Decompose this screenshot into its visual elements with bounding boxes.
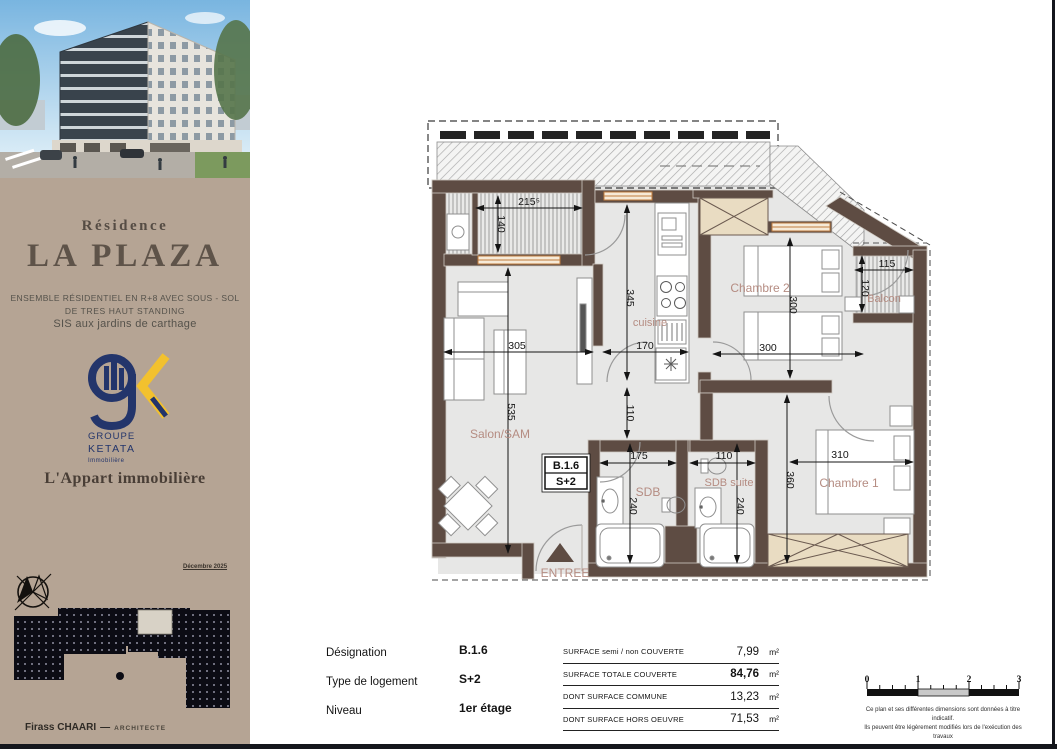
brand-name: L'Appart immobilière	[0, 470, 250, 488]
residence-label: Résidence	[0, 218, 250, 235]
site-plan	[8, 598, 240, 714]
table-row: DONT SURFACE HORS OEUVRE 71,53 m²	[563, 709, 779, 732]
sdb-vanity	[597, 477, 623, 527]
dim-300-h: 300	[759, 342, 777, 354]
pergola-slats	[440, 131, 770, 139]
architect-title: ARCHITECTE	[114, 725, 166, 732]
surface-label: DONT SURFACE HORS OEUVRE	[563, 715, 725, 724]
dim-110-v: 110	[624, 405, 636, 422]
surface-value: 13,23	[725, 691, 759, 703]
surface-value: 71,53	[725, 713, 759, 725]
disclaimer-line-1: Ce plan et ses différentes dimensions so…	[858, 706, 1028, 724]
room-label-entree: ENTREE	[541, 566, 590, 580]
surface-value: 7,99	[725, 646, 759, 658]
table-row: SURFACE TOTALE COUVERTE 84,76 m²	[563, 664, 779, 687]
info-value: S+2	[459, 672, 481, 686]
dim-240-b: 240	[734, 497, 746, 515]
table-row: DONT SURFACE COMMUNE 13,23 m²	[563, 686, 779, 709]
dim-110-b: 110	[716, 450, 733, 462]
table-row: Type de logement S+2	[326, 672, 566, 701]
dim-170: 170	[636, 340, 654, 352]
residence-subtitle-2: DE TRES HAUT STANDING	[0, 306, 250, 316]
room-label-sdb: SDB	[636, 485, 661, 499]
tv-unit	[577, 278, 592, 384]
suite-vanity	[695, 488, 721, 528]
nightstand-chambre1-b	[884, 518, 910, 534]
plan-disclaimer: Ce plan et ses différentes dimensions so…	[858, 706, 1028, 742]
table-row: SURFACE semi / non COUVERTE 7,99 m²	[563, 641, 779, 664]
dim-175: 175	[630, 450, 648, 462]
surface-unit: m²	[759, 692, 779, 702]
logo-line-ketata: KETATA	[88, 443, 136, 455]
stove	[657, 276, 687, 316]
info-label: Type de logement	[326, 676, 417, 688]
nightstand-chambre2	[845, 297, 861, 311]
room-label-cuisine: cuisine	[633, 317, 667, 329]
wc-sink	[447, 214, 469, 250]
room-label-salon: Salon/SAM	[470, 427, 530, 441]
dim-300-v: 300	[787, 296, 799, 314]
bed-chambre1	[816, 430, 914, 514]
surface-label: SURFACE semi / non COUVERTE	[563, 647, 725, 656]
residence-name: LA PLAZA	[0, 238, 250, 275]
oven	[658, 213, 686, 255]
groupe-ketata-logo-icon	[72, 350, 182, 432]
architect-dash: —	[100, 722, 110, 733]
plan-date: Décembre 2025	[183, 564, 227, 570]
info-value: B.1.6	[459, 643, 488, 657]
surface-unit: m²	[759, 669, 779, 679]
page-border-bottom	[0, 744, 1057, 749]
architect-credit: Firass CHAARI—ARCHITECTE	[25, 722, 166, 733]
kitchen-sink	[656, 348, 686, 380]
logo-line-groupe: GROUPE	[88, 431, 136, 443]
architect-name: Firass CHAARI	[25, 722, 96, 733]
sofa	[444, 318, 484, 400]
room-label-balcon: Balcon	[867, 293, 901, 305]
suite-bathtub	[700, 524, 754, 567]
surface-value: 84,76	[725, 668, 759, 680]
dim-305: 305	[508, 340, 526, 352]
table-row: Niveau 1er étage	[326, 701, 566, 730]
dim-140: 140	[495, 215, 507, 233]
wardrobe-top	[700, 198, 768, 235]
dim-345: 345	[624, 289, 636, 307]
room-label-sdb-suite: SDB suite	[705, 477, 754, 489]
info-label: Niveau	[326, 705, 362, 717]
surface-label: SURFACE TOTALE COUVERTE	[563, 670, 725, 679]
surface-unit: m²	[759, 714, 779, 724]
dim-310: 310	[831, 449, 849, 461]
info-label: Désignation	[326, 647, 387, 659]
unit-box: B.1.6 S+2	[542, 454, 590, 492]
dim-535: 535	[505, 403, 517, 421]
unit-code: B.1.6	[553, 460, 579, 472]
surface-table: SURFACE semi / non COUVERTE 7,99 m² SURF…	[563, 641, 779, 731]
dim-115: 115	[879, 258, 896, 270]
nightstand-chambre1-a	[890, 406, 912, 426]
surface-unit: m²	[759, 647, 779, 657]
loveseat	[458, 282, 508, 316]
room-label-chambre2: Chambre 2	[730, 281, 790, 295]
disclaimer-line-2: Ils peuvent être légèrement modifiés lor…	[858, 724, 1028, 742]
residence-subtitle-3: SIS aux jardins de carthage	[0, 318, 250, 330]
logo-line-immobiliere: Immobilière	[88, 455, 136, 467]
balcony-ledge	[899, 296, 914, 313]
dim-240-a: 240	[627, 497, 639, 515]
brochure-page: 215⁵ 140 345 305 170 300 300 535 110 115…	[0, 0, 1057, 749]
dim-360: 360	[784, 471, 796, 489]
dim-215: 215⁵	[518, 196, 540, 208]
unit-info-table: Désignation B.1.6 Type de logement S+2 N…	[326, 643, 566, 730]
wardrobe-chambre1	[768, 534, 908, 567]
building-photo	[0, 0, 250, 178]
info-value: 1er étage	[459, 701, 512, 715]
groupe-ketata-logo-text: GROUPE KETATA Immobilière	[88, 431, 136, 467]
sidebar: Résidence LA PLAZA ENSEMBLE RÉSIDENTIEL …	[0, 0, 250, 749]
room-label-chambre1: Chambre 1	[819, 476, 879, 490]
unit-type: S+2	[556, 476, 576, 488]
scale-bar: 0 1 2 3	[865, 675, 1022, 696]
surface-label: DONT SURFACE COMMUNE	[563, 692, 725, 701]
page-border-right	[1052, 0, 1055, 749]
table-row: Désignation B.1.6	[326, 643, 566, 672]
residence-subtitle-1: ENSEMBLE RÉSIDENTIEL EN R+8 AVEC SOUS - …	[0, 293, 250, 303]
